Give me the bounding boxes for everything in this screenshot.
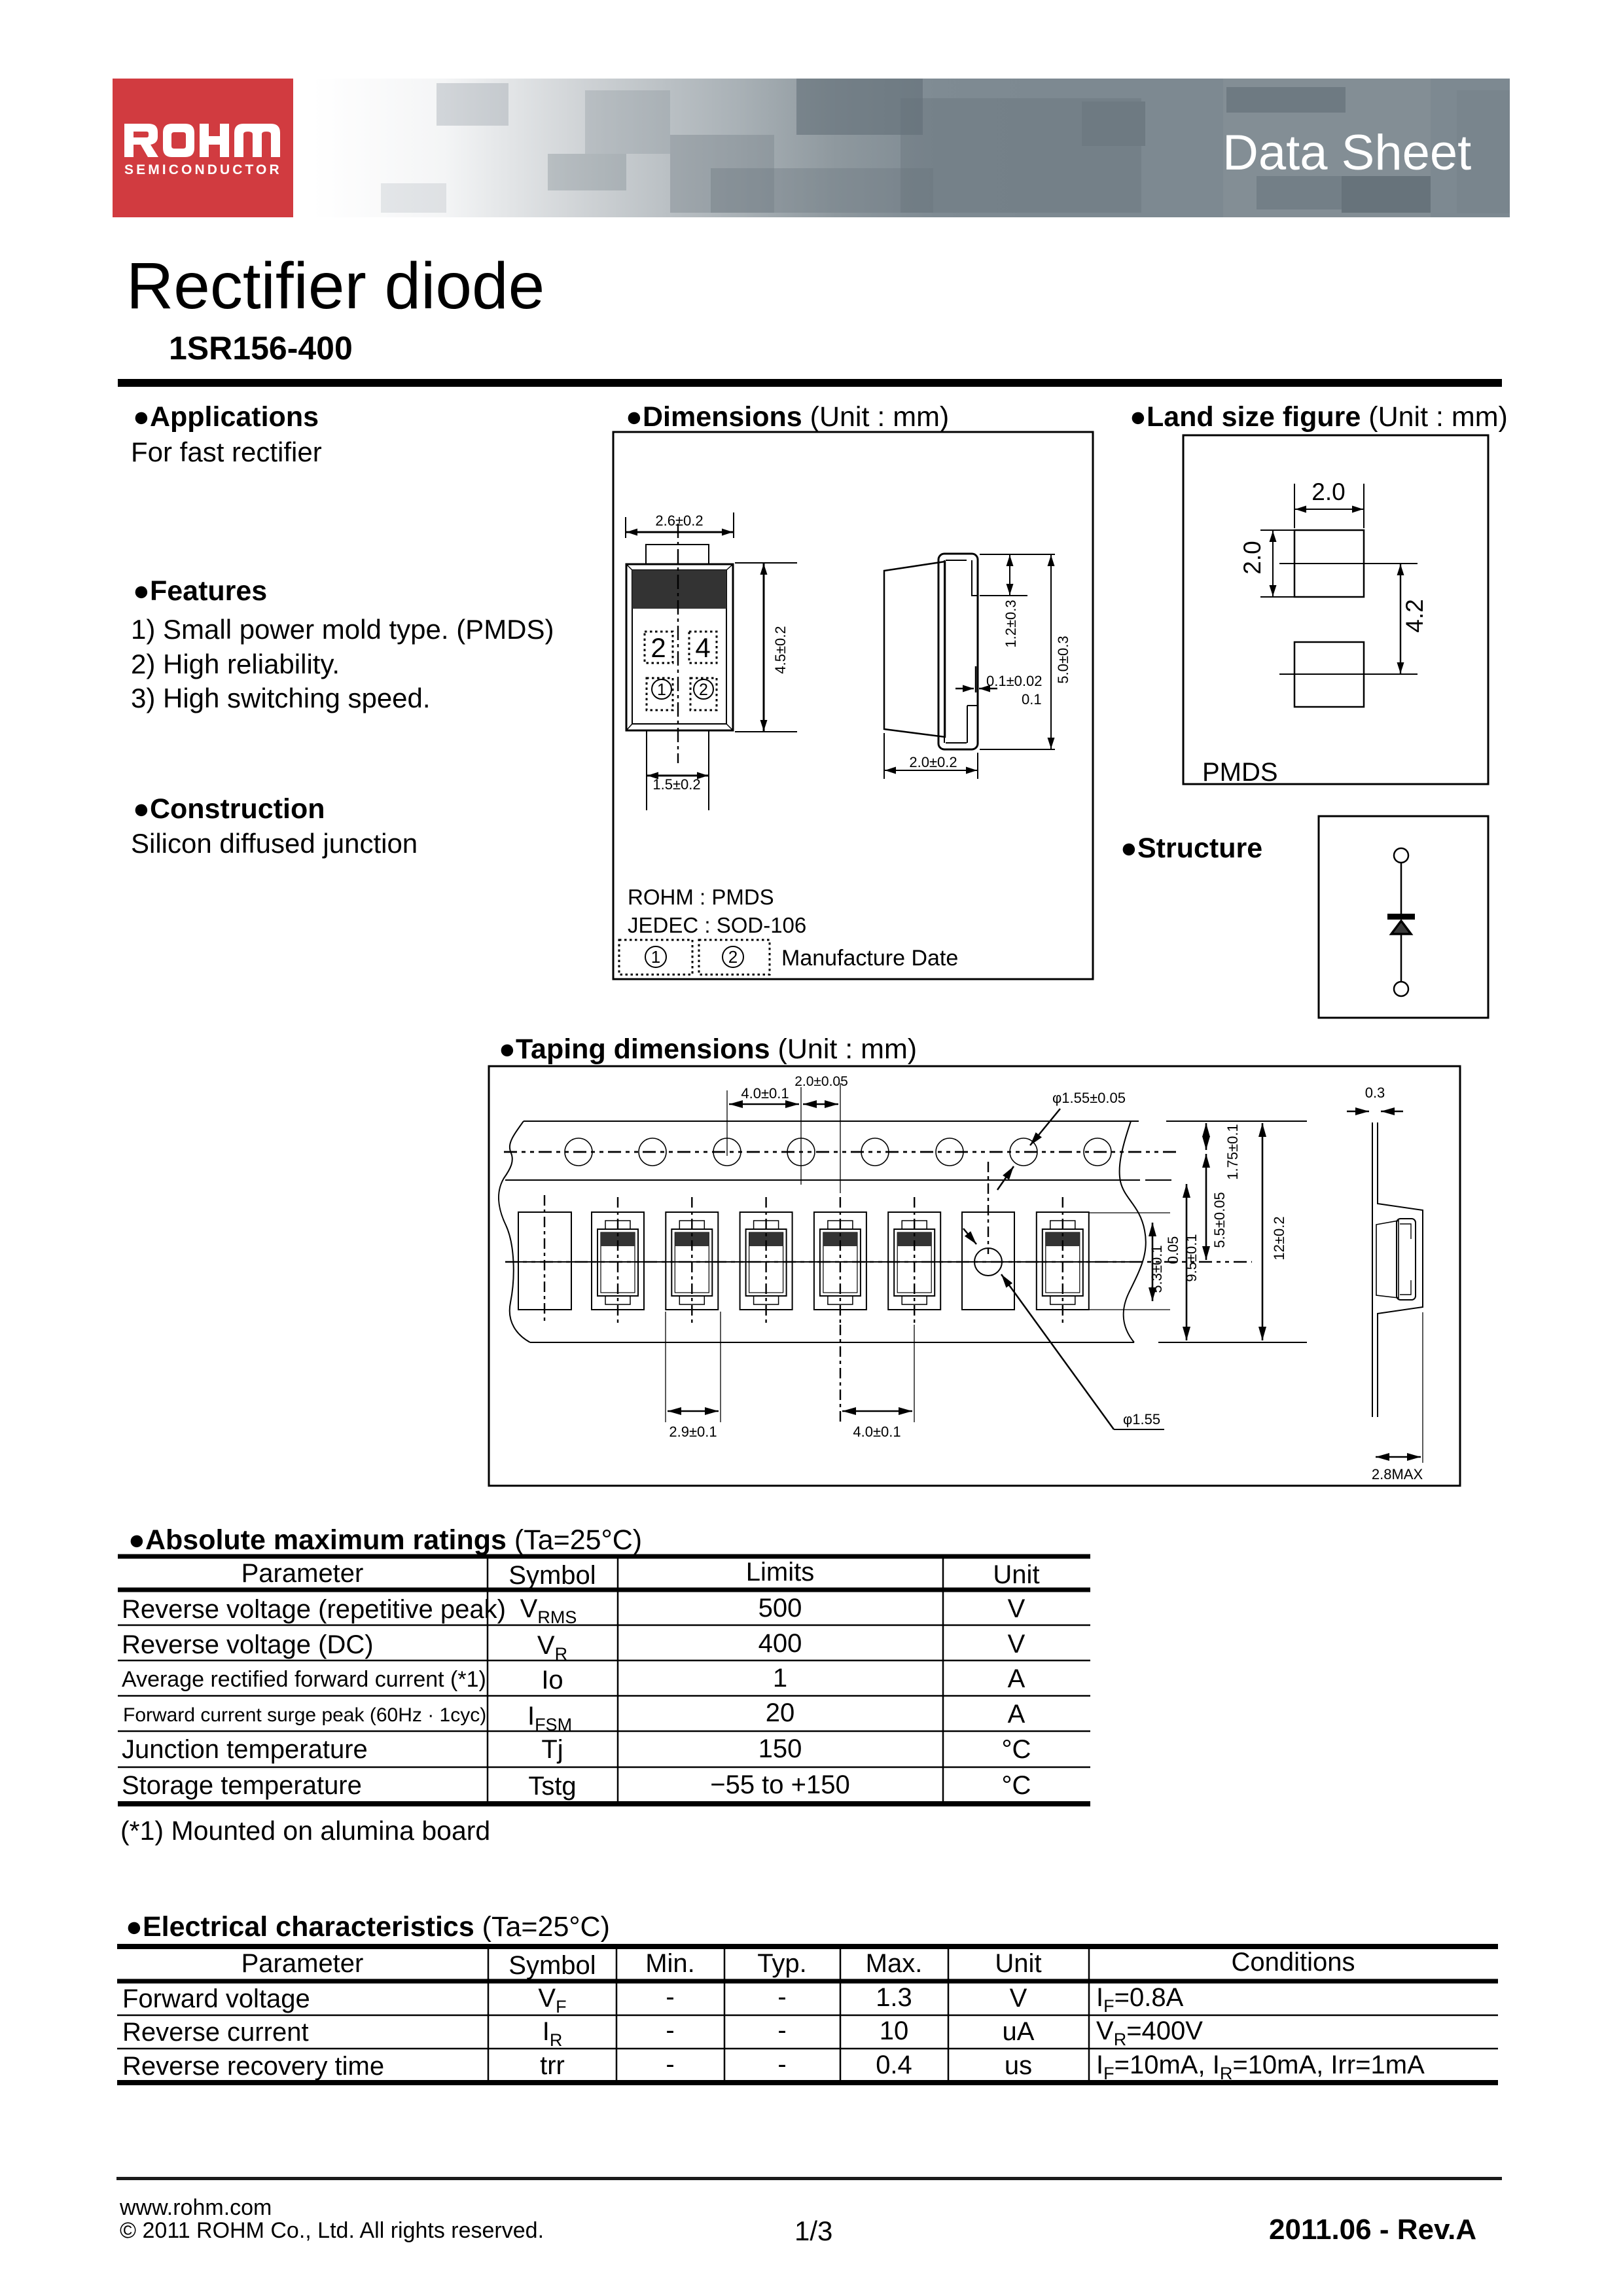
- svg-text:Limits: Limits: [746, 1558, 814, 1587]
- svg-text:Parameter: Parameter: [241, 1949, 364, 1978]
- svg-text:1: 1: [657, 681, 666, 699]
- svg-text:Tj: Tj: [541, 1735, 563, 1764]
- svg-text:φ1.55: φ1.55: [1123, 1411, 1160, 1427]
- svg-text:0.1: 0.1: [1022, 691, 1042, 708]
- svg-text:Forward voltage: Forward voltage: [122, 1984, 310, 2013]
- svg-text:1.2±0.3: 1.2±0.3: [1003, 600, 1019, 647]
- svg-text:JEDEC : SOD-106: JEDEC : SOD-106: [628, 913, 806, 937]
- svg-text:Reverse current: Reverse current: [122, 2018, 309, 2047]
- svg-text:1.75±0.1: 1.75±0.1: [1224, 1124, 1241, 1179]
- svg-text:-: -: [666, 2050, 674, 2079]
- svg-text:A: A: [1008, 1664, 1026, 1693]
- svg-text:VRMS: VRMS: [520, 1594, 577, 1627]
- svg-text:2.0: 2.0: [1239, 541, 1266, 574]
- svg-text:Manufacture Date: Manufacture Date: [781, 946, 958, 971]
- svg-text:9.5±0.1: 9.5±0.1: [1183, 1234, 1200, 1282]
- svg-text:12±0.2: 12±0.2: [1271, 1216, 1287, 1260]
- svg-text:Min.: Min.: [645, 1949, 695, 1978]
- svg-text:4.0±0.1: 4.0±0.1: [741, 1085, 789, 1102]
- svg-text:°C: °C: [1002, 1735, 1031, 1764]
- svg-text:4.2: 4.2: [1401, 599, 1428, 632]
- svg-text:2.6±0.2: 2.6±0.2: [655, 512, 703, 529]
- svg-text:Reverse voltage (DC): Reverse voltage (DC): [122, 1630, 374, 1659]
- svg-text:2.9±0.1: 2.9±0.1: [669, 1424, 717, 1440]
- svg-text:VR=400V: VR=400V: [1096, 2017, 1203, 2049]
- svg-text:Unit: Unit: [995, 1949, 1041, 1978]
- svg-text:-: -: [777, 1982, 786, 2011]
- svg-text:-: -: [666, 2016, 674, 2045]
- svg-text:Symbol: Symbol: [508, 1561, 596, 1590]
- svg-text:1.3: 1.3: [876, 1983, 912, 2012]
- svg-text:ROHM : PMDS: ROHM : PMDS: [628, 885, 774, 909]
- svg-text:1: 1: [651, 947, 660, 967]
- svg-text:2: 2: [699, 681, 708, 699]
- svg-text:1.5±0.2: 1.5±0.2: [652, 776, 700, 793]
- svg-text:-: -: [666, 1982, 674, 2011]
- svg-text:IR: IR: [543, 2017, 563, 2050]
- svg-text:2.0±0.2: 2.0±0.2: [909, 754, 957, 770]
- svg-text:Storage temperature: Storage temperature: [122, 1771, 362, 1800]
- svg-text:Io: Io: [541, 1666, 563, 1695]
- svg-text:Unit: Unit: [993, 1560, 1039, 1589]
- svg-text:0.05: 0.05: [1165, 1236, 1181, 1265]
- svg-text:0.3: 0.3: [1365, 1085, 1385, 1101]
- svg-text:Reverse recovery time: Reverse recovery time: [122, 2052, 384, 2081]
- svg-text:5.3±0.1: 5.3±0.1: [1149, 1245, 1165, 1293]
- svg-text:-: -: [777, 2050, 786, 2079]
- svg-text:trr: trr: [540, 2051, 565, 2080]
- svg-text:Tstg: Tstg: [528, 1772, 576, 1801]
- svg-text:Parameter: Parameter: [241, 1559, 364, 1588]
- svg-text:V: V: [1008, 1630, 1026, 1659]
- svg-text:Typ.: Typ.: [757, 1949, 807, 1978]
- svg-text:−55 to +150: −55 to +150: [710, 1770, 850, 1799]
- svg-text:V: V: [1008, 1594, 1026, 1623]
- svg-text:Forward current surge peak (60: Forward current surge peak (60Hz · 1cyc): [123, 1704, 486, 1726]
- svg-text:5.5±0.05: 5.5±0.05: [1211, 1192, 1228, 1247]
- svg-text:Symbol: Symbol: [508, 1951, 596, 1980]
- svg-text:0.4: 0.4: [876, 2051, 912, 2079]
- svg-text:us: us: [1005, 2051, 1032, 2080]
- svg-text:20: 20: [766, 1698, 795, 1727]
- svg-text:φ1.55±0.05: φ1.55±0.05: [1052, 1090, 1126, 1106]
- svg-text:5.0±0.3: 5.0±0.3: [1055, 636, 1071, 683]
- svg-text:Reverse voltage (repetitive pe: Reverse voltage (repetitive peak): [122, 1595, 506, 1624]
- svg-text:2: 2: [728, 947, 738, 967]
- svg-text:IF=0.8A: IF=0.8A: [1096, 1983, 1184, 2016]
- svg-text:IFSM: IFSM: [527, 1702, 572, 1734]
- svg-text:400: 400: [758, 1629, 802, 1658]
- svg-text:4.0±0.1: 4.0±0.1: [853, 1424, 901, 1440]
- svg-text:IF=10mA, IR=10mA, Irr=1mA: IF=10mA, IR=10mA, Irr=1mA: [1096, 2051, 1425, 2083]
- svg-text:150: 150: [758, 1734, 802, 1763]
- svg-text:4: 4: [695, 632, 710, 663]
- svg-text:Junction temperature: Junction temperature: [122, 1735, 368, 1764]
- svg-text:Average rectified forward curr: Average rectified forward current (*1): [122, 1667, 486, 1692]
- svg-text:VF: VF: [538, 1984, 566, 2017]
- svg-text:Conditions: Conditions: [1231, 1948, 1355, 1977]
- svg-text:A: A: [1008, 1700, 1026, 1729]
- svg-text:Max.: Max.: [866, 1949, 923, 1978]
- svg-text:0.1±0.02: 0.1±0.02: [986, 673, 1042, 689]
- svg-text:500: 500: [758, 1594, 802, 1623]
- svg-text:4.5±0.2: 4.5±0.2: [772, 626, 789, 673]
- svg-text:2.0: 2.0: [1311, 478, 1345, 505]
- svg-text:-: -: [777, 2016, 786, 2045]
- svg-text:°C: °C: [1002, 1771, 1031, 1800]
- svg-text:2.8MAX: 2.8MAX: [1372, 1466, 1423, 1482]
- svg-text:uA: uA: [1003, 2017, 1035, 2046]
- svg-text:V: V: [1010, 1984, 1027, 2013]
- svg-text:1: 1: [773, 1664, 787, 1693]
- svg-text:2: 2: [651, 632, 666, 663]
- svg-text:PMDS: PMDS: [1202, 758, 1278, 785]
- svg-text:VR: VR: [537, 1631, 567, 1664]
- svg-text:2.0±0.05: 2.0±0.05: [794, 1074, 848, 1089]
- svg-text:10: 10: [880, 2017, 909, 2045]
